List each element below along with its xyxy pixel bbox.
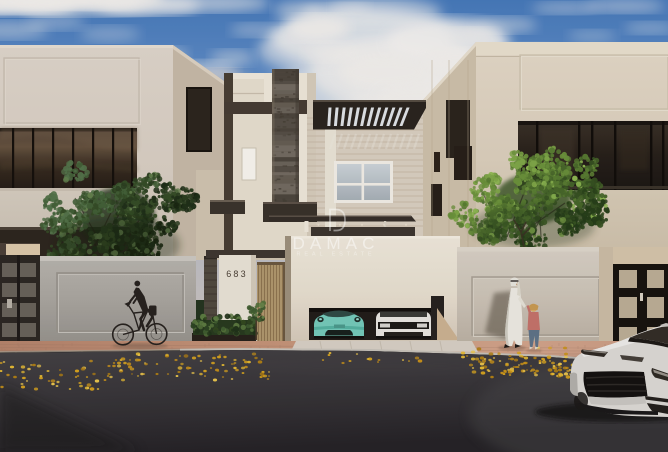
svg-text:DAMAC: DAMAC	[293, 234, 380, 253]
svg-text:REAL ESTATE: REAL ESTATE	[297, 252, 376, 258]
